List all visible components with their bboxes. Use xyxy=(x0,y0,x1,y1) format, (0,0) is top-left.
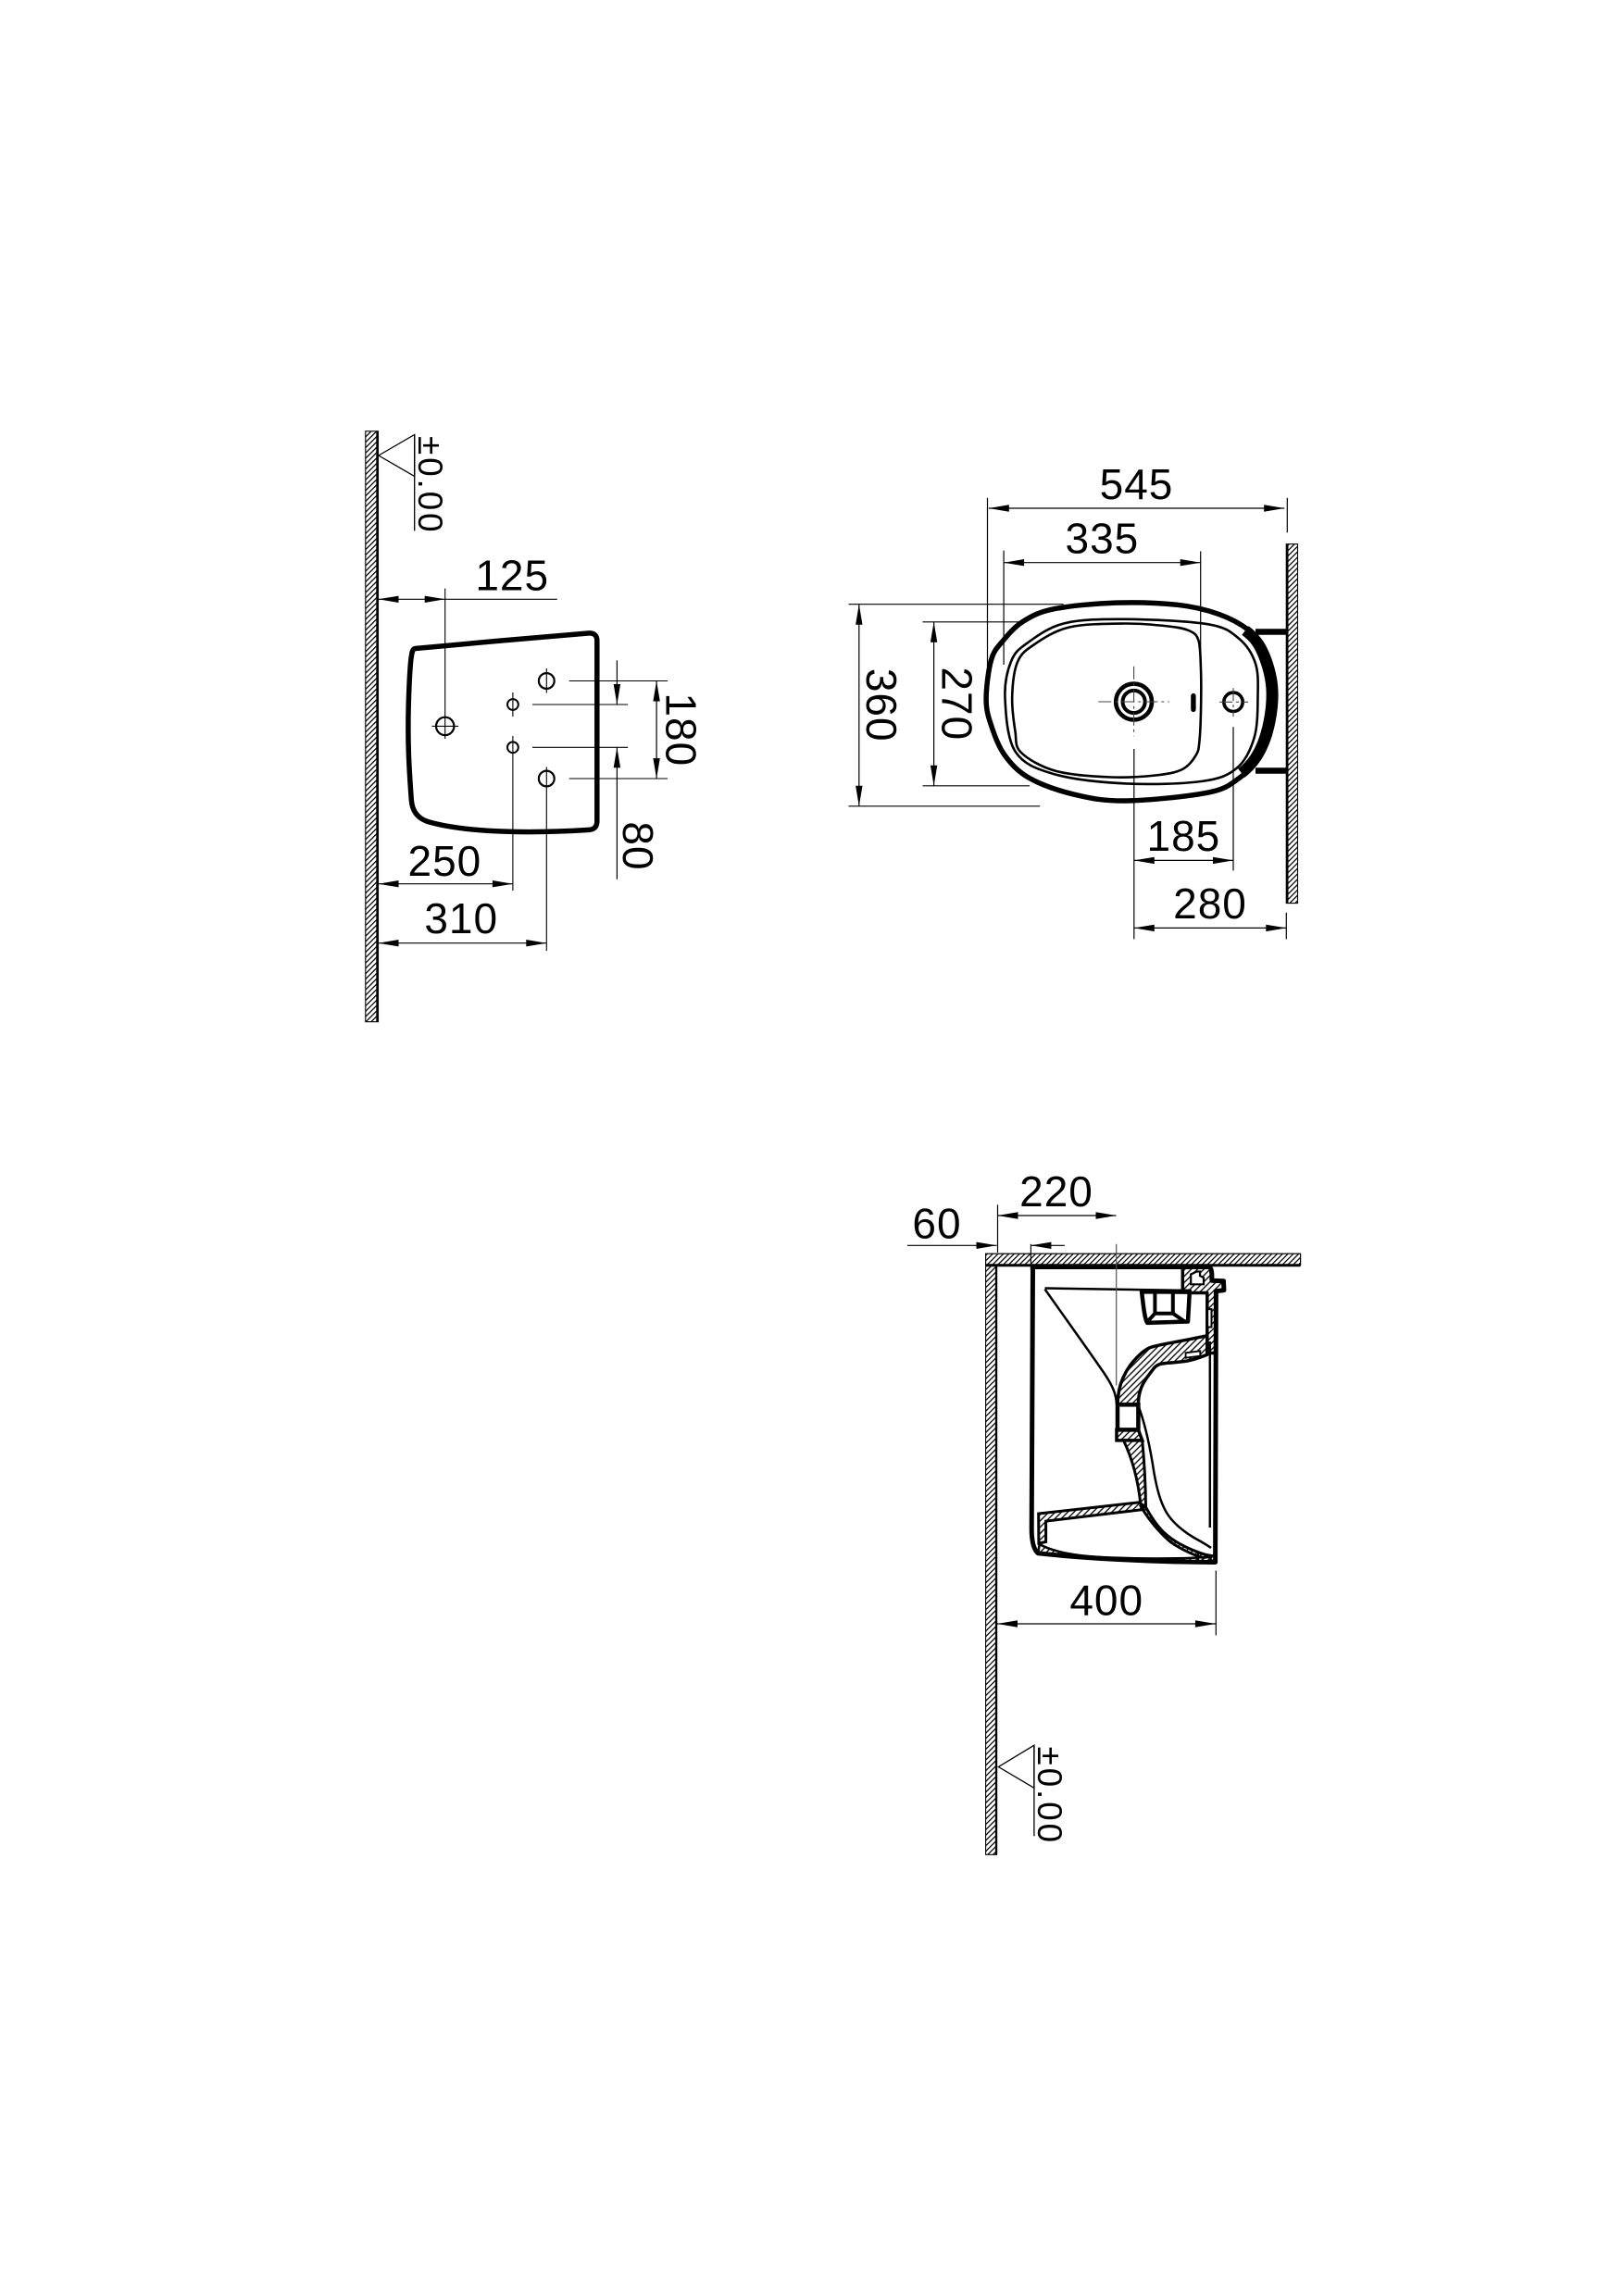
svg-text:270: 270 xyxy=(933,667,981,741)
svg-text:400: 400 xyxy=(1069,1577,1143,1625)
svg-text:125: 125 xyxy=(475,552,549,600)
svg-text:310: 310 xyxy=(424,894,498,942)
svg-text:335: 335 xyxy=(1066,515,1140,563)
svg-text:250: 250 xyxy=(408,837,482,885)
svg-text:±0.00: ±0.00 xyxy=(1031,1747,1068,1845)
svg-text:±0.00: ±0.00 xyxy=(411,436,449,534)
svg-text:80: 80 xyxy=(614,821,662,870)
svg-text:280: 280 xyxy=(1173,879,1247,928)
svg-text:360: 360 xyxy=(857,668,906,742)
svg-text:60: 60 xyxy=(912,1200,961,1248)
svg-text:220: 220 xyxy=(1019,1167,1093,1216)
svg-text:185: 185 xyxy=(1147,812,1221,860)
svg-text:180: 180 xyxy=(657,692,706,767)
svg-text:545: 545 xyxy=(1100,460,1174,508)
